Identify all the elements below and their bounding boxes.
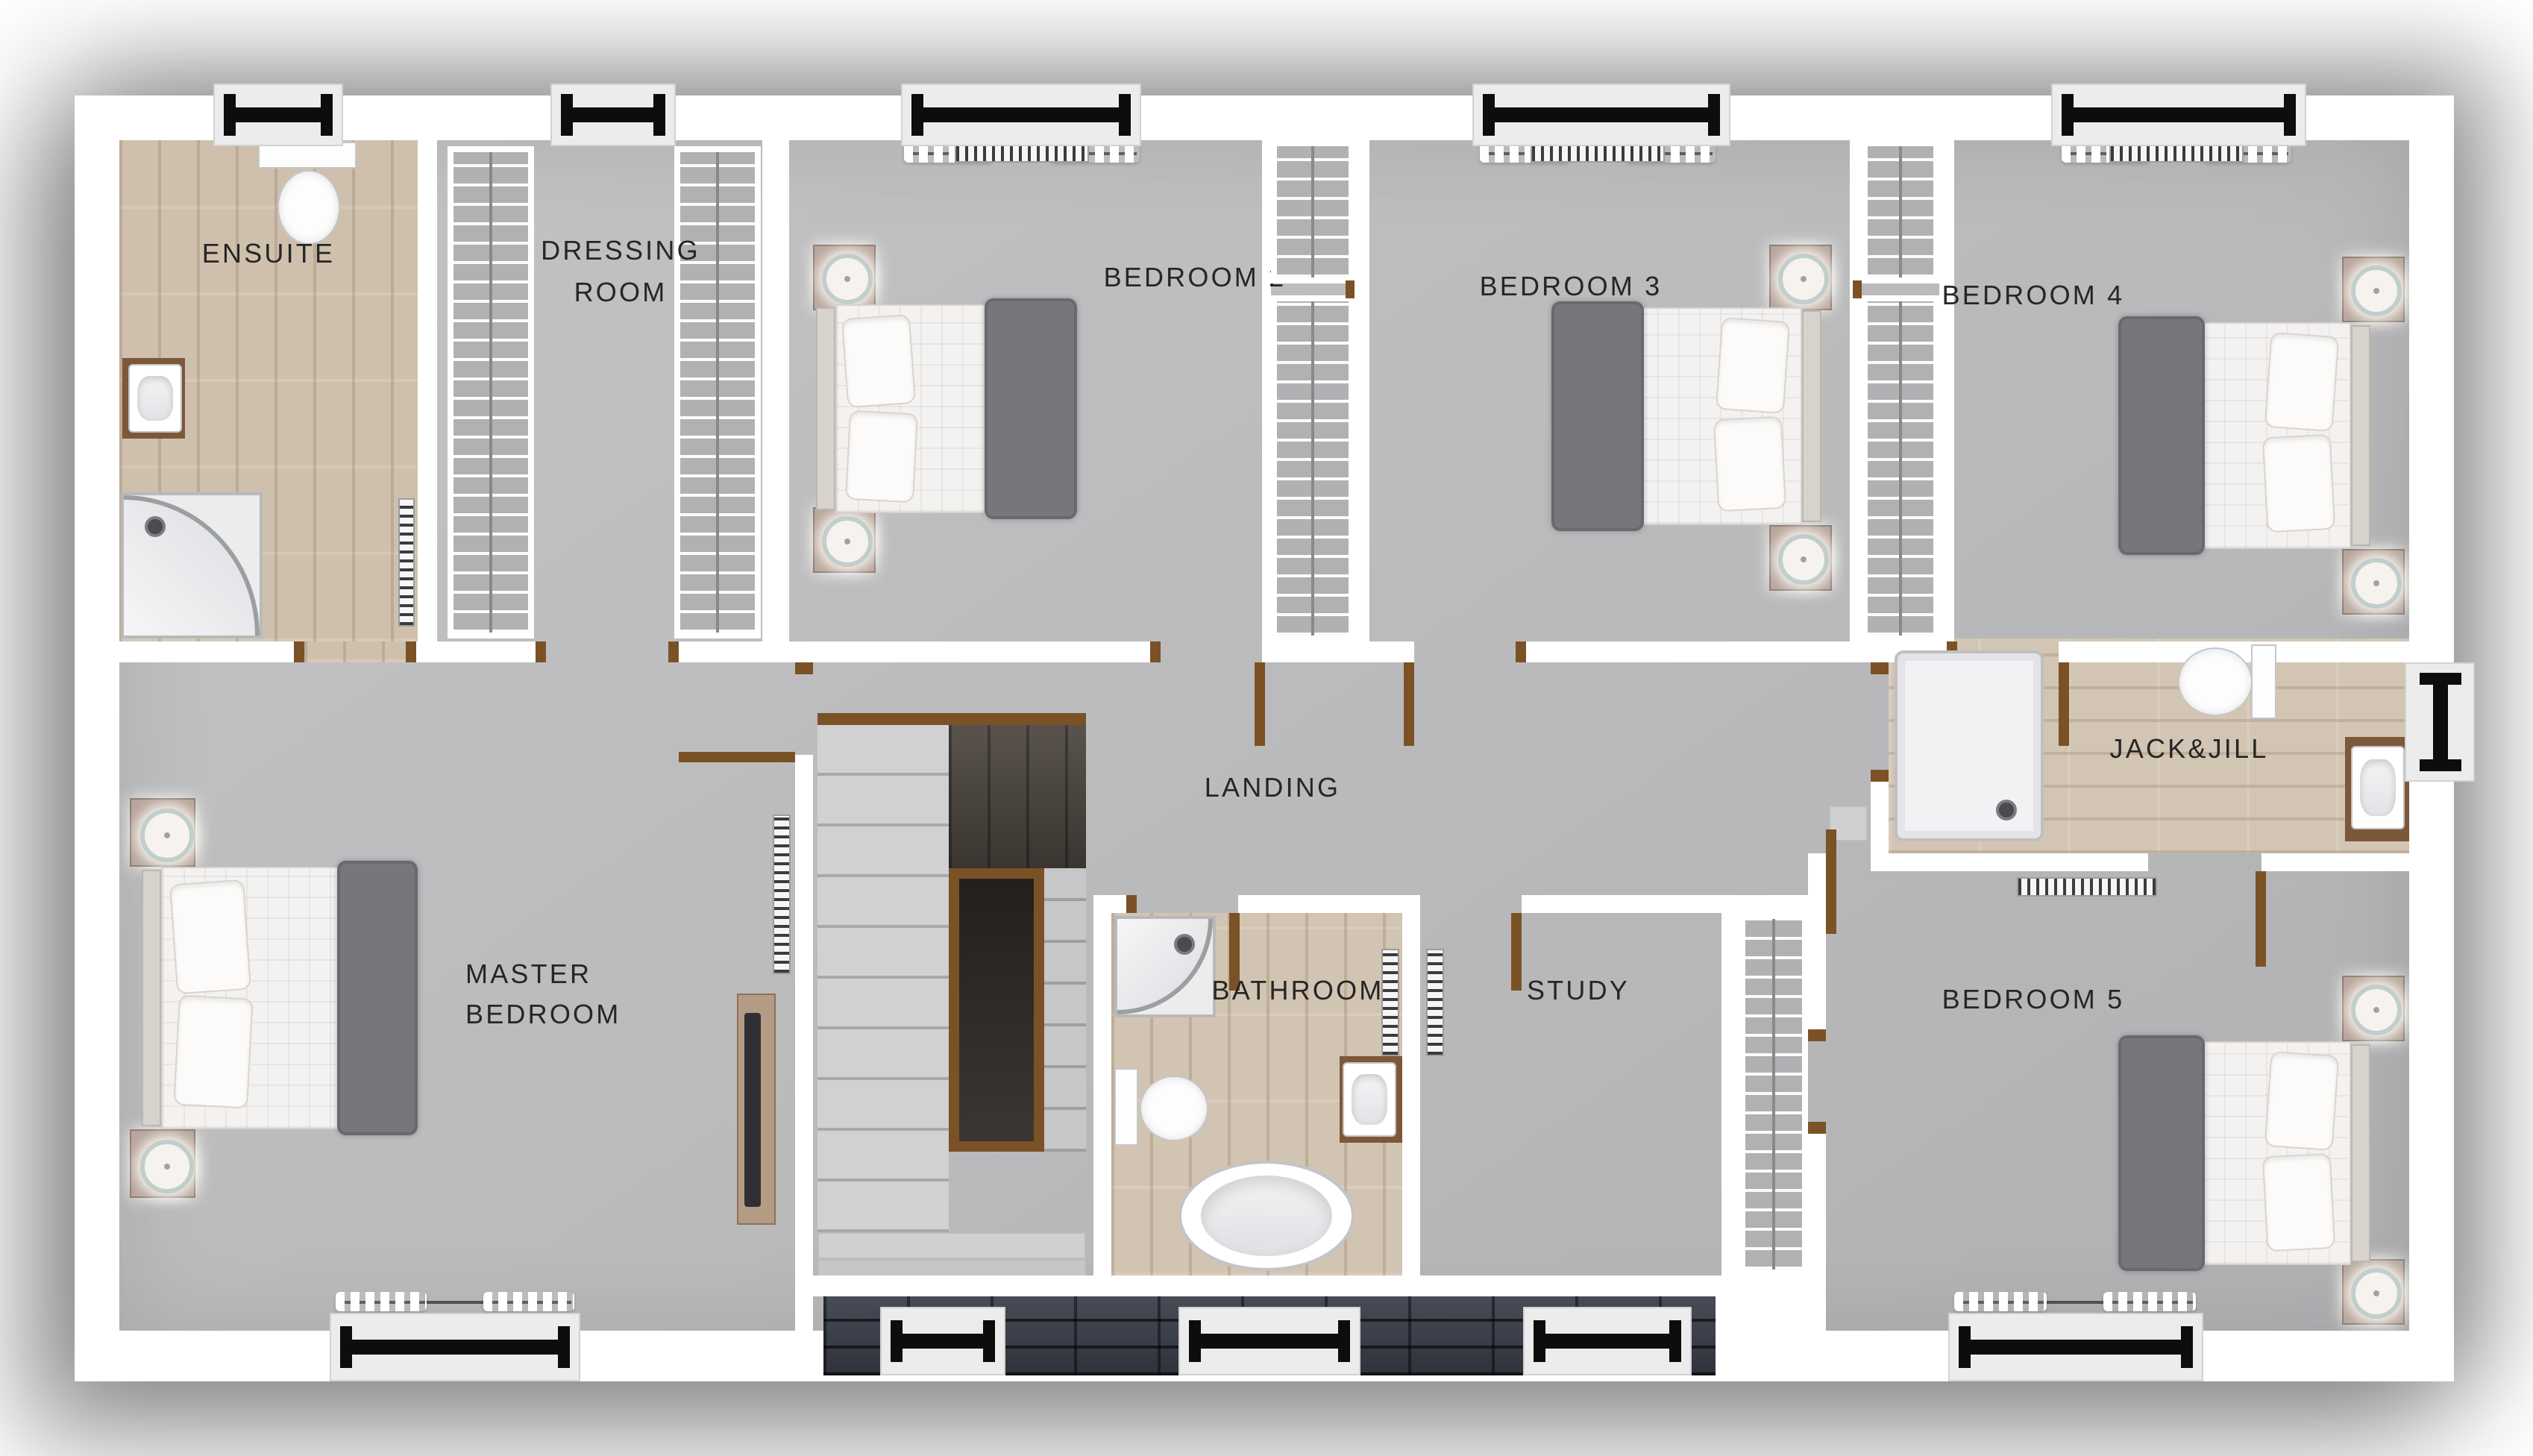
lamp-icon [2351, 266, 2402, 316]
door-jamb [294, 641, 304, 662]
wall [418, 140, 437, 662]
room-label-dressing-line1: DRESSING [486, 236, 755, 267]
door-jamb [1871, 662, 1889, 674]
lamp-icon [2351, 985, 2402, 1035]
radiator-icon [1531, 145, 1665, 163]
toilet-icon [1114, 1068, 1138, 1146]
bed-headboard [816, 307, 835, 510]
lamp-icon [2351, 1268, 2402, 1319]
window [213, 84, 343, 146]
throw-blanket [2118, 316, 2205, 555]
room-label-master-line2: BEDROOM [465, 1000, 621, 1031]
door-leaf-jack-and-jill [2256, 871, 2266, 967]
door-jamb [1808, 1029, 1826, 1041]
wall [1808, 853, 1826, 871]
door-jamb [1126, 895, 1137, 913]
radiator-icon [773, 815, 791, 974]
lamp-icon [1778, 254, 1829, 304]
shower-drain [1174, 934, 1195, 955]
window [1472, 84, 1730, 146]
wall [668, 641, 1161, 662]
bed-headboard [142, 870, 161, 1126]
wall [1871, 770, 1889, 853]
wall [813, 1275, 1826, 1296]
stairs-half-landing [949, 725, 1086, 868]
pillow [2262, 434, 2336, 533]
wall [1093, 895, 1111, 1280]
shower-tray-icon [1895, 650, 2044, 841]
wall [1939, 140, 1954, 662]
pillow [2264, 1051, 2340, 1151]
stairs-flight [817, 725, 949, 1232]
stairs-flight [1044, 868, 1086, 1152]
room-label-bathroom: BATHROOM [1178, 976, 1417, 1007]
curtain-icon [1954, 1292, 2196, 1311]
stairwell-void [949, 868, 1044, 1152]
wall [1850, 140, 1862, 662]
lamp-icon [140, 809, 194, 862]
window-glazing-bar [1535, 1334, 1680, 1349]
curtain-ruffle [336, 1292, 427, 1311]
throw-blanket [1551, 301, 1644, 531]
door-jamb [1871, 770, 1889, 782]
wardrobe-icon [1862, 140, 1939, 283]
pillow [2264, 332, 2340, 432]
radiator-icon [2109, 145, 2244, 163]
window [550, 84, 676, 146]
room-label-ensuite: ENSUITE [134, 239, 403, 270]
stair-step [817, 1232, 1086, 1259]
shower-glass [124, 495, 260, 636]
door-jamb [1808, 1122, 1826, 1134]
curtain-ruffle [483, 1292, 574, 1311]
wall [1808, 1134, 1826, 1275]
throw-blanket [985, 298, 1077, 519]
wall [1522, 895, 1826, 913]
door-leaf-bedroom3 [1404, 662, 1414, 746]
bath-icon [1178, 1161, 1355, 1271]
bed-headboard [1802, 310, 1821, 522]
throw-blanket [337, 861, 418, 1135]
room-label-study: STUDY [1459, 976, 1698, 1007]
wall [406, 641, 546, 662]
door-jamb [406, 641, 416, 662]
wall [1721, 895, 1739, 1280]
bed-headboard [2351, 325, 2370, 546]
wall [119, 641, 304, 662]
radiator-icon [955, 145, 1089, 163]
wall [1262, 641, 1414, 662]
bath-inner [1200, 1175, 1333, 1256]
window-glazing-bar [2432, 674, 2447, 770]
room-label-jack-and-jill: JACK&JILL [2059, 734, 2320, 765]
door-jamb [1853, 280, 1862, 298]
wall [1262, 140, 1271, 662]
window [1523, 1307, 1692, 1375]
window-glazing-bar [892, 1334, 994, 1349]
bed-headboard [2351, 1044, 2370, 1262]
window [1948, 1313, 2203, 1381]
toilet-bowl-icon [1140, 1076, 1208, 1141]
radiator-icon [2017, 877, 2157, 897]
shower-drain [1996, 800, 2017, 820]
door-jamb [536, 641, 546, 662]
lamp-icon [822, 516, 873, 567]
room-label-landing: LANDING [1146, 773, 1399, 804]
window [880, 1307, 1005, 1375]
lamp-icon [1778, 534, 1829, 585]
window-glazing-bar [913, 107, 1129, 122]
pillow [1713, 416, 1786, 512]
lamp-icon [140, 1140, 194, 1193]
wall [762, 140, 789, 662]
lamp-icon [822, 254, 873, 304]
window [2405, 662, 2475, 782]
window-glazing-bar [562, 107, 664, 122]
sink-icon [1343, 1062, 1396, 1137]
room-label-bedroom3: BEDROOM 3 [1459, 272, 1683, 303]
door-jamb [1346, 280, 1355, 298]
pillow [841, 314, 916, 408]
wall [1402, 895, 1420, 1280]
tv-icon [744, 1013, 761, 1207]
wall [1871, 853, 2148, 871]
window [901, 84, 1141, 146]
door-jamb [668, 641, 679, 662]
wardrobe-icon [1271, 140, 1355, 283]
clothes-rail-icon [448, 146, 534, 638]
window-glazing-bar [1190, 1334, 1349, 1349]
toilet-icon [2251, 644, 2276, 719]
window-glazing-bar [2063, 107, 2294, 122]
radiator-icon [398, 498, 415, 627]
room-label-dressing-line2: ROOM [486, 277, 755, 309]
window [2051, 84, 2306, 146]
window-glazing-bar [342, 1340, 568, 1355]
window [330, 1313, 580, 1381]
lamp-icon [2351, 558, 2402, 609]
door-jamb [795, 662, 813, 674]
floor-plan: ENSUITE DRESSING ROOM BEDROOM 2 BEDROOM … [0, 0, 2533, 1456]
curtain-ruffle [1954, 1292, 2046, 1311]
pillow [845, 410, 918, 503]
wall [1808, 853, 1826, 1029]
wall [1355, 140, 1369, 662]
room-label-bedroom5: BEDROOM 5 [1921, 985, 2145, 1016]
wardrobe-icon [1739, 913, 1808, 1275]
door-leaf-bedroom2 [1255, 662, 1265, 746]
door-opening-ensuite [304, 641, 406, 662]
radiator-icon [1426, 949, 1444, 1056]
clothes-rail-icon [674, 146, 761, 638]
pillow [2262, 1153, 2336, 1252]
toilet-bowl-icon [277, 170, 340, 245]
curtain-ruffle [2104, 1292, 2196, 1311]
door-jamb [1516, 641, 1526, 662]
wall [1716, 1275, 1826, 1381]
shower-icon [121, 492, 263, 638]
sink-icon [128, 364, 182, 433]
wall [795, 755, 813, 1331]
pillow [1716, 317, 1790, 414]
tv-unit [737, 994, 776, 1225]
door-jamb [1150, 641, 1161, 662]
throw-blanket [2118, 1035, 2205, 1271]
plan-scale-wrapper: ENSUITE DRESSING ROOM BEDROOM 2 BEDROOM … [0, 0, 2533, 1456]
wall [1516, 641, 1957, 662]
window [1178, 1307, 1360, 1375]
wall [1238, 895, 1420, 913]
pillow [173, 994, 254, 1108]
wall [2262, 853, 2409, 871]
window-glazing-bar [225, 107, 331, 122]
sink-icon [2351, 746, 2405, 829]
window-glazing-bar [1960, 1340, 2191, 1355]
door-leaf-master [679, 752, 795, 762]
banister-handrail [817, 713, 1086, 725]
window-glazing-bar [1484, 107, 1719, 122]
door-leaf-bedroom5 [1826, 829, 1836, 934]
wardrobe-icon [1271, 295, 1355, 641]
wardrobe-icon [1862, 295, 1939, 641]
room-label-master-line1: MASTER [465, 959, 591, 991]
room-label-bedroom4: BEDROOM 4 [1921, 280, 2145, 312]
shower-drain [145, 516, 166, 537]
toilet-bowl-icon [2178, 647, 2253, 716]
pillow [169, 879, 251, 995]
curtain-icon [336, 1292, 574, 1311]
